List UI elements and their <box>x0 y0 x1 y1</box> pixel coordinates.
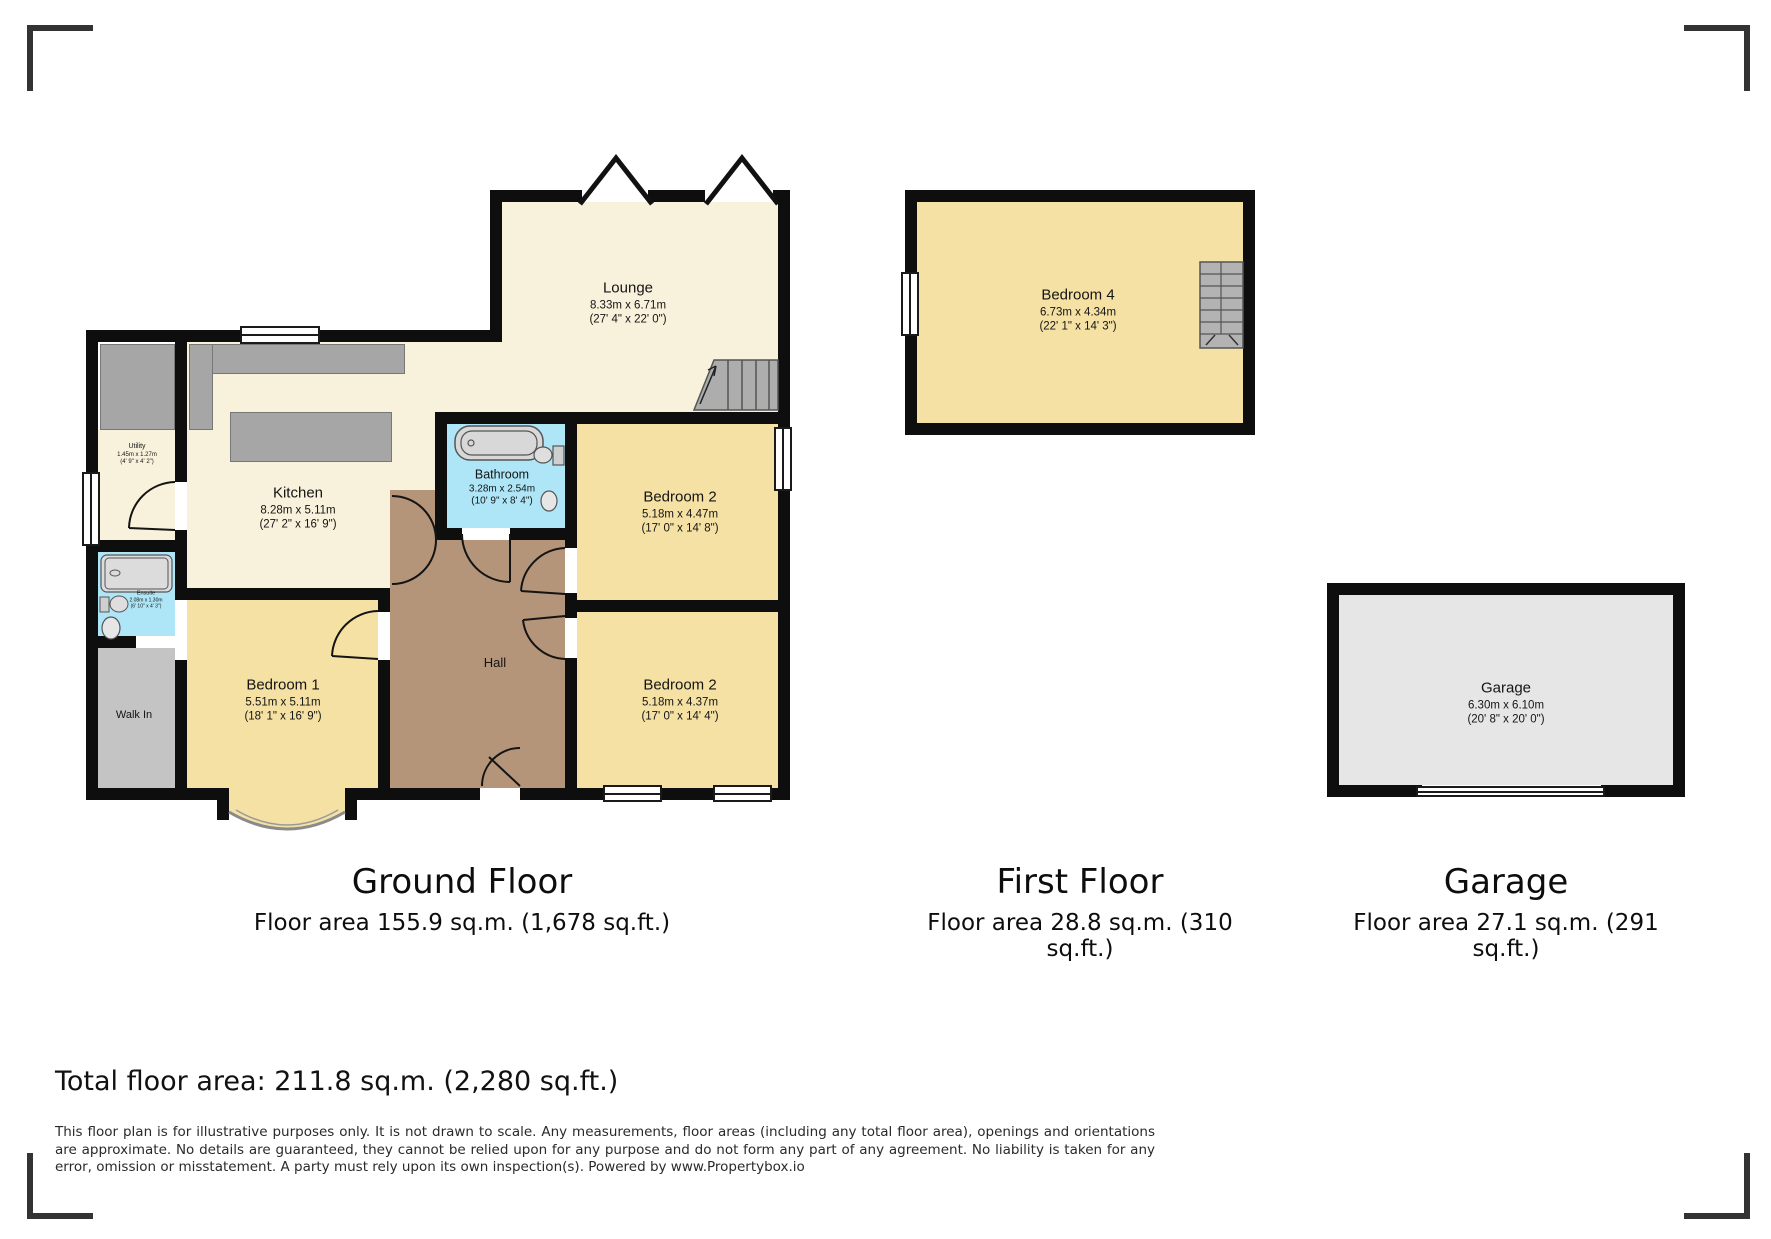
ensuite-label: Ensuite 2.08m x 1.30m (6' 10" x 4' 3") <box>129 590 162 609</box>
bedroom2a-label: Bedroom 2 5.18m x 4.47m (17' 0" x 14' 8"… <box>641 488 718 536</box>
disclaimer-text: This floor plan is for illustrative purp… <box>55 1124 1155 1177</box>
bathtub-icon <box>455 426 543 460</box>
bedroom1-label: Bedroom 1 5.51m x 5.11m (18' 1" x 16' 9"… <box>244 676 321 724</box>
garage-room-label: Garage 6.30m x 6.10m (20' 8" x 20' 0") <box>1467 679 1544 727</box>
door-symbol <box>706 158 778 204</box>
lounge-label: Lounge 8.33m x 6.71m (27' 4" x 22' 0") <box>589 279 666 327</box>
utility-label: Utility 1.45m x 1.27m (4' 9" x 4' 2") <box>117 443 157 467</box>
bedroom4-label: Bedroom 4 6.73m x 4.34m (22' 1" x 14' 3"… <box>1039 286 1116 334</box>
floorplan-page: Lounge 8.33m x 6.71m (27' 4" x 22' 0") K… <box>0 0 1771 1239</box>
garage-title: Garage Floor area 27.1 sq.m. (291 sq.ft.… <box>1338 862 1674 962</box>
stairs-icon <box>1200 262 1243 348</box>
stairs-icon <box>694 360 778 410</box>
toilet-icon <box>534 446 564 465</box>
toilet-icon <box>100 596 128 612</box>
shower-icon <box>101 555 172 592</box>
kitchen-label: Kitchen 8.28m x 5.11m (27' 2" x 16' 9") <box>259 484 336 532</box>
bathroom-label: Bathroom 3.28m x 2.54m (10' 9" x 8' 4") <box>469 468 535 509</box>
door-swing <box>129 482 565 786</box>
walkin-label: Walk In <box>116 709 152 723</box>
ground-floor-title: Ground Floor Floor area 155.9 sq.m. (1,6… <box>212 862 712 936</box>
door-symbol <box>580 158 652 204</box>
total-floor-area: Total floor area: 211.8 sq.m. (2,280 sq.… <box>55 1066 618 1097</box>
hall-label: Hall <box>484 655 506 671</box>
sink-icon <box>102 617 120 639</box>
bay-window <box>229 788 345 829</box>
floorplan-decorations <box>0 0 1771 1239</box>
first-floor-title: First Floor Floor area 28.8 sq.m. (310 s… <box>880 862 1280 962</box>
sink-icon <box>541 491 557 511</box>
bedroom2b-label: Bedroom 2 5.18m x 4.37m (17' 0" x 14' 4"… <box>641 676 718 724</box>
